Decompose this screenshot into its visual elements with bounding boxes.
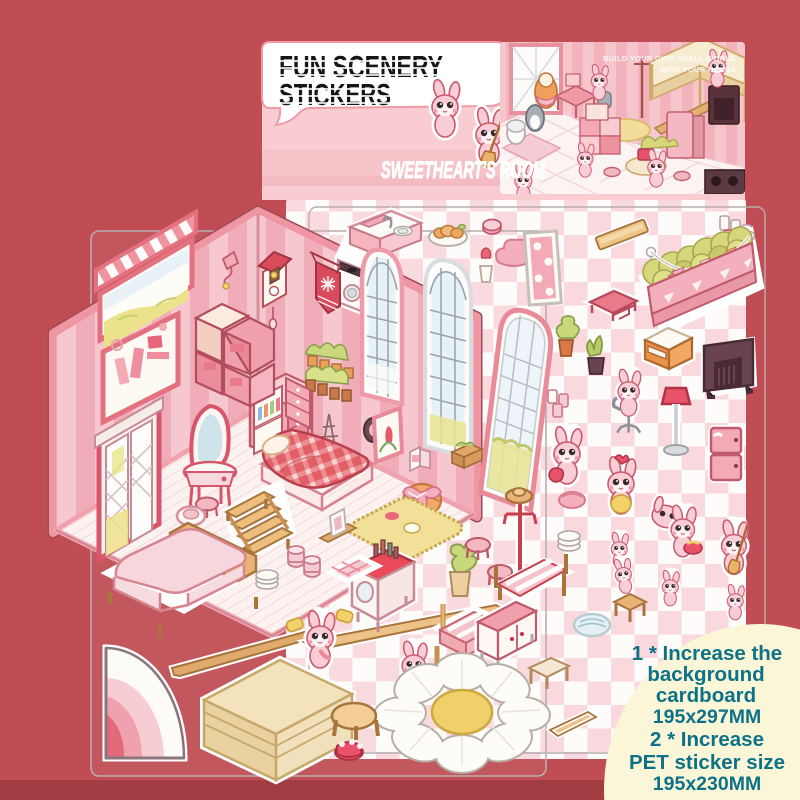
svg-text:BUILD YOUR OWN SMALL WORLD: BUILD YOUR OWN SMALL WORLD [603, 54, 736, 63]
svg-text:2 * Increase: 2 * Increase [650, 728, 764, 751]
svg-text:STICKERS: STICKERS [279, 77, 391, 112]
svg-text:PET sticker size: PET sticker size [629, 751, 785, 774]
svg-text:SWEETHEART'S ROOM: SWEETHEART'S ROOM [381, 157, 546, 184]
svg-text:195x230MM: 195x230MM [653, 773, 761, 795]
svg-text:1 * Increase the: 1 * Increase the [632, 642, 782, 665]
svg-text:background: background [647, 663, 764, 686]
svg-text:cardboard: cardboard [656, 684, 756, 707]
svg-text:WITH YOUR HANDS: WITH YOUR HANDS [660, 65, 736, 74]
svg-text:195x297MM: 195x297MM [653, 706, 761, 728]
